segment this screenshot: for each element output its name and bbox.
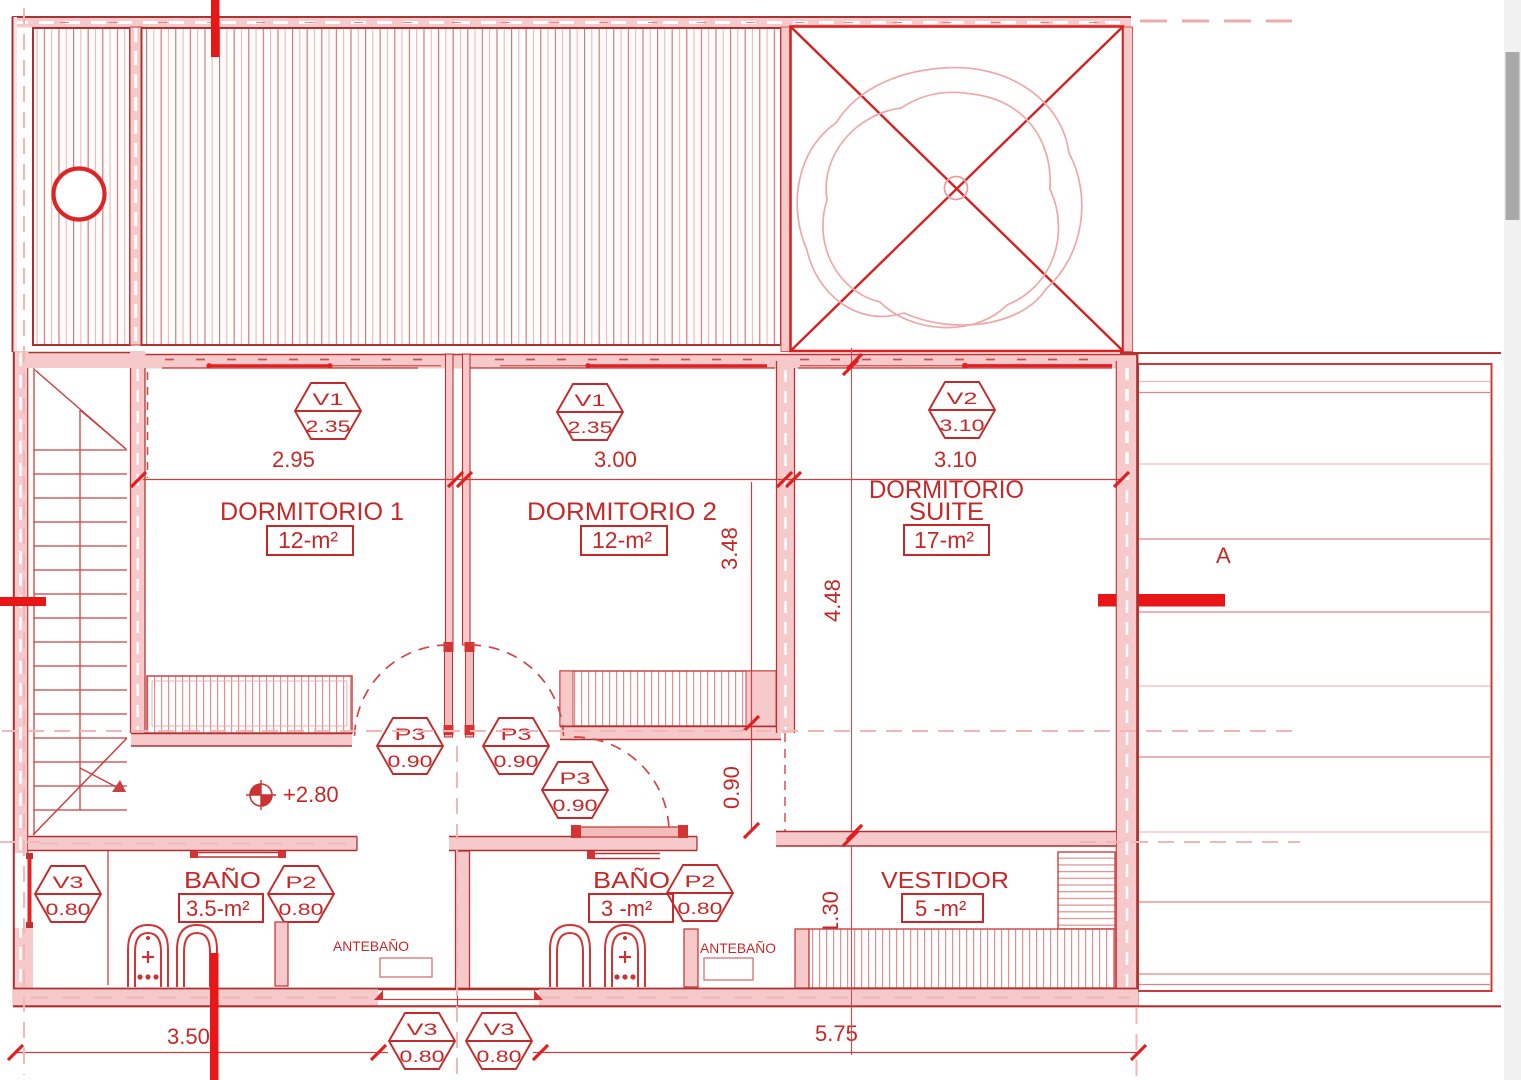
svg-text:0.80: 0.80 [400,1047,445,1066]
svg-text:1.30: 1.30 [818,891,843,934]
svg-text:BAÑO: BAÑO [184,867,261,893]
svg-text:12-m²: 12-m² [278,527,338,553]
svg-text:2.35: 2.35 [568,418,613,437]
svg-text:V3: V3 [53,873,84,892]
svg-text:BAÑO: BAÑO [593,867,670,893]
svg-text:ANTEBAÑO: ANTEBAÑO [700,940,776,956]
svg-text:V2: V2 [947,389,978,408]
svg-text:A: A [1216,543,1231,568]
svg-text:SUITE: SUITE [909,498,984,526]
svg-text:DORMITORIO 1: DORMITORIO 1 [220,498,404,526]
svg-text:V3: V3 [407,1020,438,1039]
svg-text:3.48: 3.48 [717,527,742,570]
svg-text:ANTEBAÑO: ANTEBAÑO [333,938,409,954]
svg-text:P3: P3 [560,769,591,788]
svg-text:DORMITORIO 2: DORMITORIO 2 [527,498,717,526]
svg-text:0.80: 0.80 [46,900,91,919]
svg-text:0.80: 0.80 [678,899,723,918]
svg-text:P2: P2 [685,872,716,891]
svg-text:VESTIDOR: VESTIDOR [881,867,1009,893]
svg-text:3 -m²: 3 -m² [601,896,652,921]
svg-text:3.10: 3.10 [934,447,977,472]
svg-text:0.90: 0.90 [388,752,433,771]
svg-text:P2: P2 [286,873,317,892]
svg-text:17-m²: 17-m² [914,527,974,553]
svg-text:3.50: 3.50 [167,1024,210,1049]
svg-text:P3: P3 [501,725,532,744]
svg-text:+2.80: +2.80 [283,782,339,807]
svg-text:3.00: 3.00 [594,447,637,472]
svg-text:V3: V3 [484,1020,515,1039]
svg-text:3.5-m²: 3.5-m² [186,896,250,921]
svg-text:2.35: 2.35 [306,417,351,436]
svg-text:0.90: 0.90 [553,796,598,815]
svg-text:P3: P3 [395,725,426,744]
svg-text:2.95: 2.95 [272,447,315,472]
svg-text:V1: V1 [575,391,606,410]
svg-text:5 -m²: 5 -m² [915,896,966,921]
svg-text:12-m²: 12-m² [592,527,652,553]
svg-text:0.80: 0.80 [279,900,324,919]
svg-text:4.48: 4.48 [820,579,845,622]
svg-text:0.90: 0.90 [719,766,744,809]
svg-text:V1: V1 [313,390,344,409]
svg-text:0.90: 0.90 [494,752,539,771]
svg-text:3.10: 3.10 [940,416,985,435]
svg-text:0.80: 0.80 [477,1047,522,1066]
